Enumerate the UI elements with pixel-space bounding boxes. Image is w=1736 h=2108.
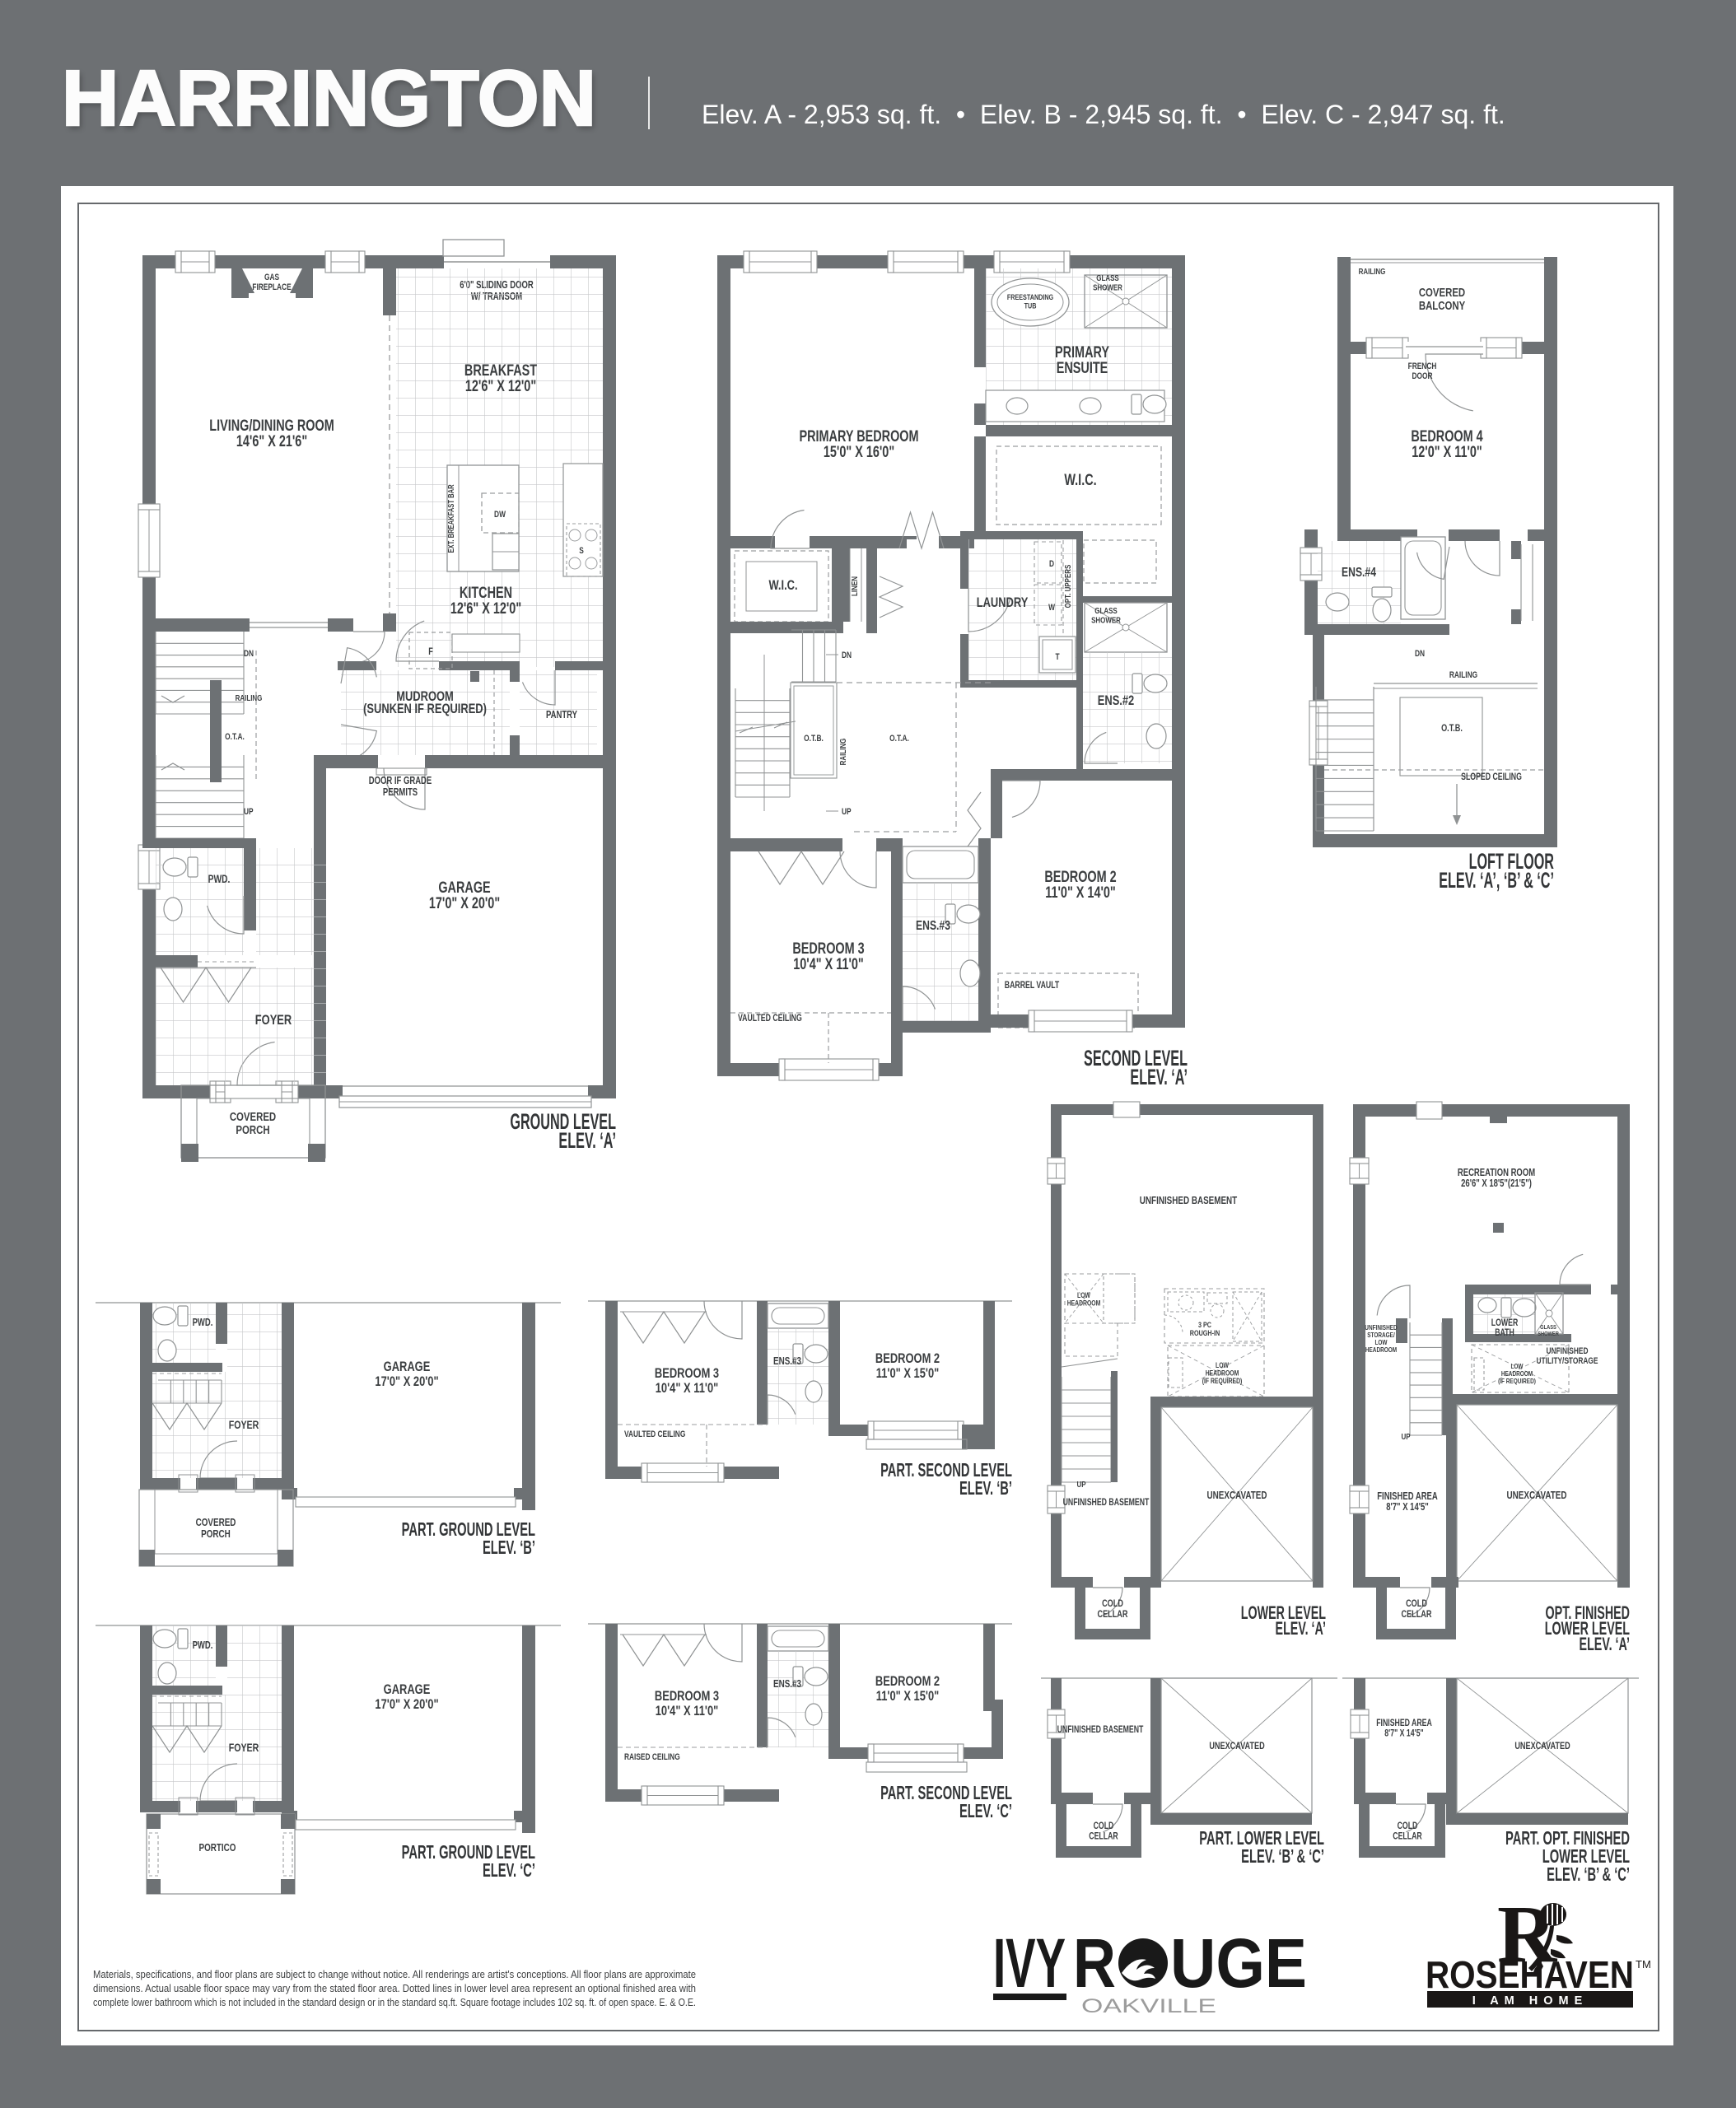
svg-text:ELEV. ‘A’: ELEV. ‘A’ (1130, 1065, 1188, 1089)
svg-text:SHOWER: SHOWER (1091, 615, 1121, 624)
svg-text:ELEV. ‘A’: ELEV. ‘A’ (1580, 1634, 1630, 1654)
svg-text:14'6" X 21'6": 14'6" X 21'6" (236, 432, 307, 450)
svg-text:ENS.#3: ENS.#3 (773, 1679, 801, 1691)
svg-text:COLD: COLD (1102, 1598, 1123, 1610)
svg-text:D: D (1049, 559, 1054, 569)
svg-text:VAULTED CEILING: VAULTED CEILING (738, 1014, 802, 1024)
svg-text:ROSEHAVEN: ROSEHAVEN (1426, 1953, 1634, 1996)
svg-text:BEDROOM 2: BEDROOM 2 (875, 1673, 940, 1689)
svg-text:12'0" X 11'0": 12'0" X 11'0" (1412, 443, 1482, 460)
svg-text:Materials, specifications, and: Materials, specifications, and floor pla… (93, 1968, 699, 2008)
svg-text:12'6" X 12'0": 12'6" X 12'0" (465, 377, 536, 394)
svg-text:UNEXCAVATED: UNEXCAVATED (1514, 1741, 1570, 1752)
svg-text:RECREATION ROOM: RECREATION ROOM (1458, 1168, 1535, 1179)
svg-text:PORCH: PORCH (201, 1529, 231, 1541)
svg-text:PERMITS: PERMITS (383, 787, 418, 799)
svg-text:UTILITY/STORAGE: UTILITY/STORAGE (1537, 1356, 1598, 1366)
svg-text:W.I.C.: W.I.C. (768, 577, 797, 593)
svg-text:UNFINISHED BASEMENT: UNFINISHED BASEMENT (1063, 1498, 1150, 1508)
svg-text:15'0" X 16'0": 15'0" X 16'0" (824, 443, 894, 460)
svg-text:T: T (1055, 652, 1059, 662)
svg-text:10'4" X 11'0": 10'4" X 11'0" (656, 1380, 718, 1396)
svg-text:CELLAR: CELLAR (1098, 1609, 1128, 1621)
svg-text:TUB: TUB (1024, 301, 1037, 310)
svg-text:O.T.A.: O.T.A. (225, 732, 245, 742)
svg-text:FINISHED AREA: FINISHED AREA (1377, 1491, 1437, 1503)
svg-text:UP: UP (244, 807, 254, 817)
svg-text:GARAGE: GARAGE (384, 1359, 431, 1374)
svg-text:CELLAR: CELLAR (1089, 1831, 1118, 1841)
svg-text:BEDROOM 2: BEDROOM 2 (875, 1350, 940, 1366)
svg-text:GLASS: GLASS (1094, 606, 1117, 615)
svg-text:ELEV. ‘C’: ELEV. ‘C’ (483, 1861, 535, 1882)
svg-text:VAULTED CEILING: VAULTED CEILING (624, 1429, 685, 1439)
svg-text:ENS.#2: ENS.#2 (1098, 693, 1134, 708)
svg-text:OAKVILLE: OAKVILLE (1081, 1995, 1216, 2017)
svg-text:COLD: COLD (1406, 1598, 1427, 1610)
svg-text:PORTICO: PORTICO (199, 1843, 236, 1854)
svg-text:PANTRY: PANTRY (546, 710, 577, 721)
svg-text:ELEV. ‘B’ & ‘C’: ELEV. ‘B’ & ‘C’ (1547, 1865, 1630, 1886)
svg-text:8'7" X 14'5": 8'7" X 14'5" (1384, 1728, 1424, 1738)
svg-text:ELEV. ‘A’: ELEV. ‘A’ (1276, 1618, 1326, 1639)
svg-text:BEDROOM 3: BEDROOM 3 (655, 1365, 719, 1381)
svg-text:UNFINISHED BASEMENT: UNFINISHED BASEMENT (1140, 1196, 1237, 1207)
svg-text:COVERED: COVERED (1419, 285, 1466, 299)
svg-text:ENSUITE: ENSUITE (1057, 359, 1108, 376)
svg-text:LAUNDRY: LAUNDRY (977, 595, 1029, 610)
svg-text:SHOWER: SHOWER (1093, 282, 1122, 291)
svg-text:BATH: BATH (1495, 1328, 1514, 1338)
svg-text:COVERED: COVERED (196, 1518, 236, 1529)
svg-text:OPT. UPPERS: OPT. UPPERS (1063, 565, 1072, 609)
svg-text:COLD: COLD (1094, 1821, 1114, 1831)
svg-text:FOYER: FOYER (255, 1012, 292, 1028)
svg-text:GARAGE: GARAGE (384, 1681, 431, 1697)
svg-text:PWD.: PWD. (193, 1317, 213, 1329)
svg-text:LINEN: LINEN (850, 576, 859, 596)
svg-text:SHOWER: SHOWER (1538, 1331, 1559, 1337)
svg-text:12'6" X 12'0": 12'6" X 12'0" (450, 599, 521, 617)
svg-text:RAILING: RAILING (838, 739, 847, 766)
svg-text:UNEXCAVATED: UNEXCAVATED (1507, 1490, 1567, 1502)
svg-text:11'0" X 14'0": 11'0" X 14'0" (1045, 884, 1116, 901)
svg-text:GLASS: GLASS (1096, 273, 1118, 282)
svg-text:UGE: UGE (1170, 1924, 1307, 2002)
svg-text:26'6" X 18'5"(21'5"): 26'6" X 18'5"(21'5") (1461, 1178, 1532, 1190)
svg-text:PWD.: PWD. (193, 1640, 213, 1652)
svg-text:UNFINISHED BASEMENT: UNFINISHED BASEMENT (1057, 1725, 1144, 1735)
svg-text:F: F (428, 646, 433, 658)
svg-text:ELEV. ‘B’: ELEV. ‘B’ (959, 1479, 1012, 1499)
svg-text:BEDROOM 3: BEDROOM 3 (655, 1688, 719, 1704)
svg-text:LOWER: LOWER (1491, 1318, 1519, 1328)
svg-text:EXT. BREAKFAST BAR: EXT. BREAKFAST BAR (446, 484, 455, 553)
svg-text:11'0" X 15'0": 11'0" X 15'0" (876, 1365, 939, 1381)
svg-text:ENS.#4: ENS.#4 (1342, 565, 1376, 580)
svg-text:GLASS: GLASS (1540, 1324, 1556, 1331)
svg-text:UNFINISHED: UNFINISHED (1547, 1346, 1589, 1356)
svg-text:DOOR IF GRADE: DOOR IF GRADE (369, 776, 432, 787)
svg-text:17'0" X 20'0": 17'0" X 20'0" (375, 1373, 438, 1389)
svg-text:PWD.: PWD. (208, 873, 231, 886)
svg-text:HEADROOM: HEADROOM (1067, 1299, 1101, 1308)
svg-text:BALCONY: BALCONY (1419, 298, 1465, 312)
svg-text:RAISED CEILING: RAISED CEILING (624, 1752, 680, 1762)
svg-text:ELEV. ‘C’: ELEV. ‘C’ (959, 1802, 1012, 1822)
svg-text:O.T.A.: O.T.A. (889, 734, 909, 744)
svg-text:ELEV. ‘B’ & ‘C’: ELEV. ‘B’ & ‘C’ (1241, 1847, 1324, 1868)
svg-text:BARREL VAULT: BARREL VAULT (1005, 981, 1060, 991)
svg-text:FOYER: FOYER (229, 1742, 259, 1755)
svg-text:FRENCH: FRENCH (1408, 361, 1437, 371)
svg-text:ELEV. ‘B’: ELEV. ‘B’ (483, 1538, 535, 1559)
svg-text:GAS: GAS (264, 273, 280, 282)
svg-text:UP: UP (842, 807, 852, 817)
svg-text:UP: UP (1401, 1432, 1410, 1441)
svg-text:17'0" X 20'0": 17'0" X 20'0" (429, 894, 500, 912)
svg-text:DN: DN (842, 651, 852, 660)
svg-text:UNEXCAVATED: UNEXCAVATED (1207, 1490, 1267, 1502)
svg-text:ROUGH-IN: ROUGH-IN (1190, 1328, 1220, 1337)
svg-text:PORCH: PORCH (236, 1122, 269, 1136)
svg-text:(SUNKEN IF REQUIRED): (SUNKEN IF REQUIRED) (363, 701, 487, 716)
svg-text:W: W (1048, 603, 1056, 613)
svg-text:DN: DN (244, 649, 254, 659)
svg-text:ELEV. ‘A’, ‘B’ & ‘C’: ELEV. ‘A’, ‘B’ & ‘C’ (1439, 868, 1554, 893)
svg-text:O.T.B.: O.T.B. (1441, 723, 1463, 735)
svg-text:R: R (1073, 1924, 1116, 2002)
svg-text:COVERED: COVERED (230, 1109, 277, 1123)
svg-text:10'4" X 11'0": 10'4" X 11'0" (793, 955, 864, 972)
svg-text:RAILING: RAILING (1449, 670, 1477, 680)
svg-text:HEADROOM: HEADROOM (1365, 1345, 1397, 1354)
svg-text:SLOPED CEILING: SLOPED CEILING (1461, 772, 1522, 782)
svg-text:CELLAR: CELLAR (1402, 1609, 1432, 1621)
svg-text:(IF REQUIRED): (IF REQUIRED) (1498, 1377, 1536, 1385)
svg-text:RAILING: RAILING (1359, 267, 1386, 276)
svg-text:FIREPLACE: FIREPLACE (252, 282, 292, 292)
svg-text:RAILING: RAILING (236, 693, 263, 702)
svg-text:COLD: COLD (1398, 1821, 1418, 1831)
svg-text:IVY: IVY (993, 1924, 1066, 2002)
svg-text:ENS.#3: ENS.#3 (773, 1356, 801, 1368)
svg-text:UP: UP (1076, 1480, 1085, 1489)
svg-text:DN: DN (1415, 649, 1425, 659)
svg-text:S: S (579, 546, 584, 556)
svg-text:8'7" X 14'5": 8'7" X 14'5" (1386, 1502, 1429, 1513)
svg-text:I AM HOME: I AM HOME (1472, 1994, 1589, 2008)
svg-text:17'0" X 20'0": 17'0" X 20'0" (375, 1696, 438, 1712)
svg-text:(IF REQUIRED): (IF REQUIRED) (1202, 1377, 1243, 1385)
svg-text:FOYER: FOYER (229, 1419, 259, 1432)
svg-text:ENS.#3: ENS.#3 (916, 918, 950, 933)
svg-text:CELLAR: CELLAR (1393, 1831, 1422, 1841)
svg-text:11'0" X 15'0": 11'0" X 15'0" (876, 1688, 939, 1704)
svg-text:TM: TM (1636, 1958, 1651, 1970)
svg-text:ELEV. ‘A’: ELEV. ‘A’ (558, 1128, 616, 1153)
svg-text:W.I.C.: W.I.C. (1064, 471, 1096, 488)
svg-text:UNEXCAVATED: UNEXCAVATED (1209, 1741, 1265, 1752)
svg-text:O.T.B.: O.T.B. (804, 734, 824, 744)
svg-text:DW: DW (494, 510, 506, 520)
svg-text:10'4" X 11'0": 10'4" X 11'0" (656, 1703, 718, 1719)
svg-text:FINISHED AREA: FINISHED AREA (1376, 1719, 1432, 1728)
svg-text:DOOR: DOOR (1412, 371, 1432, 381)
